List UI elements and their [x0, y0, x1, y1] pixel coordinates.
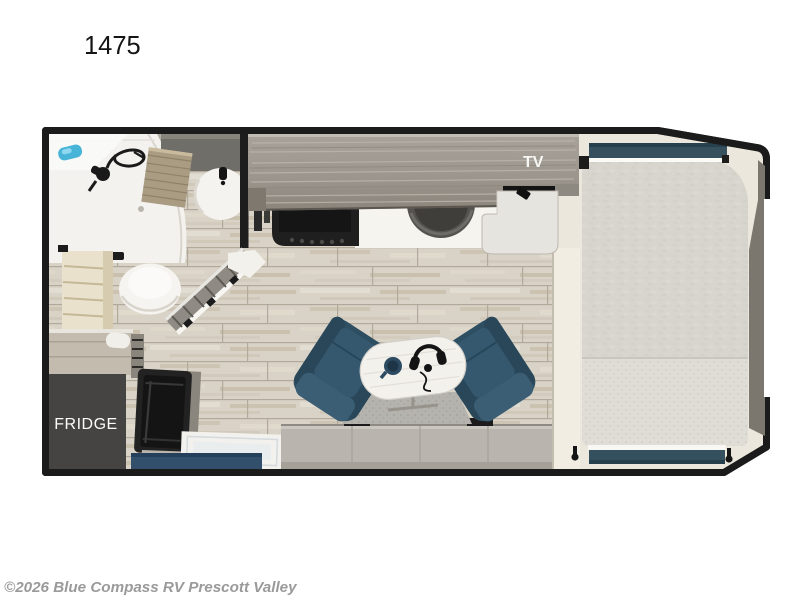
svg-text:FRIDGE: FRIDGE: [54, 416, 117, 433]
svg-text:TV: TV: [523, 154, 544, 171]
